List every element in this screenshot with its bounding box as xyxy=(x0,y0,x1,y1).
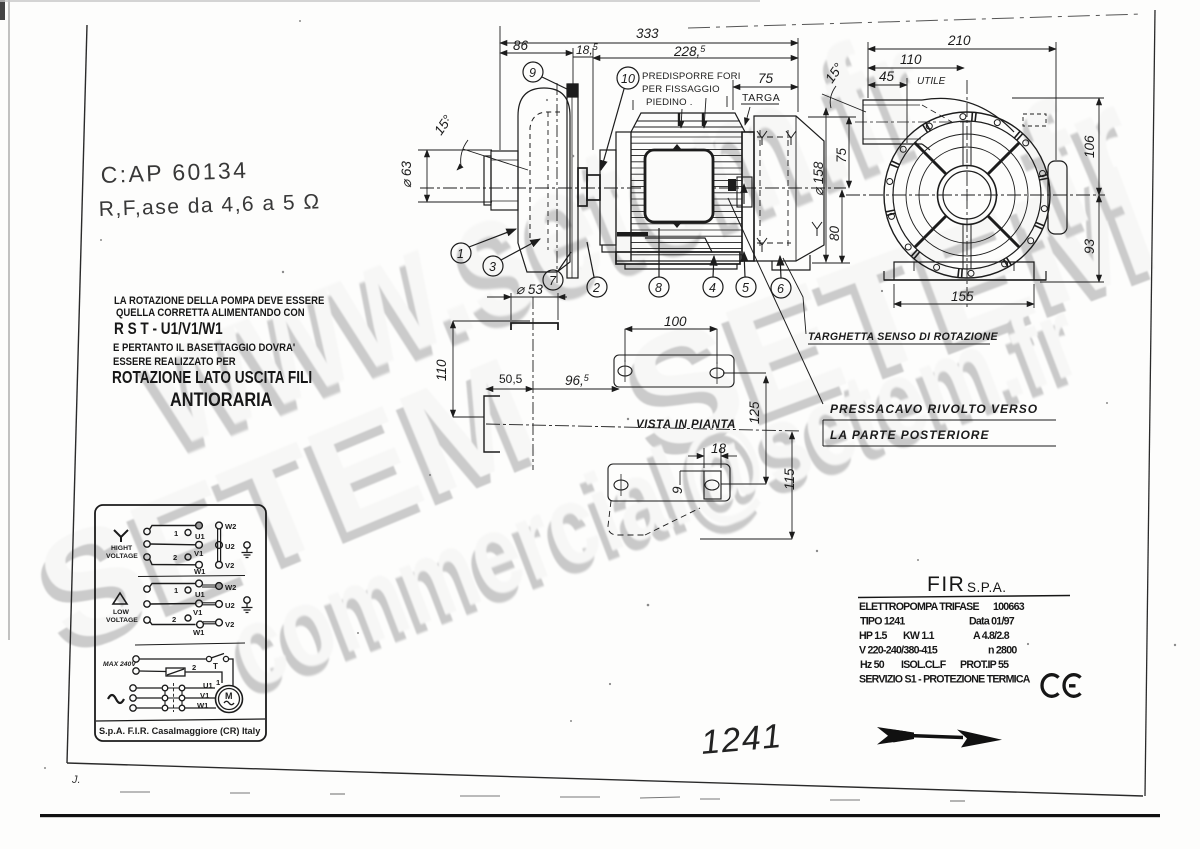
svg-text:T: T xyxy=(213,662,218,671)
svg-text:W2: W2 xyxy=(225,522,236,531)
svg-text:E PERTANTO IL BASETTAGGIO DOVR: E PERTANTO IL BASETTAGGIO DOVRA' xyxy=(113,342,295,354)
svg-text:18: 18 xyxy=(711,441,727,456)
svg-text:50,5: 50,5 xyxy=(499,372,523,386)
svg-text:⌀ 53: ⌀ 53 xyxy=(516,282,543,297)
svg-text:PER FISSAGGIO: PER FISSAGGIO xyxy=(642,84,720,95)
svg-text:U2: U2 xyxy=(225,601,235,610)
svg-text:U1: U1 xyxy=(203,681,213,690)
svg-text:J.: J. xyxy=(71,774,81,786)
svg-text:TARGHETTA SENSO DI ROTAZIONE: TARGHETTA SENSO DI ROTAZIONE xyxy=(808,331,998,343)
svg-text:U1: U1 xyxy=(195,532,205,541)
svg-text:n 2800: n 2800 xyxy=(988,645,1017,657)
svg-text:V1: V1 xyxy=(194,549,204,558)
svg-text:2: 2 xyxy=(192,663,196,672)
svg-text:TIPO 1241: TIPO 1241 xyxy=(860,616,905,628)
svg-text:SERVIZIO S1 - PROTEZIONE TERMI: SERVIZIO S1 - PROTEZIONE TERMICA xyxy=(859,674,1031,686)
svg-text:R,F,ase da 4,6 a 5 Ω: R,F,ase da 4,6 a 5 Ω xyxy=(98,190,321,221)
svg-text:V2: V2 xyxy=(225,620,234,629)
svg-text:2: 2 xyxy=(173,553,177,562)
svg-text:HIGHT: HIGHT xyxy=(111,545,133,552)
svg-text:100663: 100663 xyxy=(993,601,1025,613)
svg-text:U2: U2 xyxy=(225,542,235,551)
svg-text:125: 125 xyxy=(747,401,762,424)
svg-text:LA ROTAZIONE DELLA POMPA DEVE: LA ROTAZIONE DELLA POMPA DEVE ESSERE xyxy=(114,295,324,307)
svg-text:UTILE: UTILE xyxy=(917,76,946,87)
svg-text:V 220-240/380-415: V 220-240/380-415 xyxy=(859,645,938,657)
svg-text:ESSERE REALIZZATO PER: ESSERE REALIZZATO PER xyxy=(113,356,236,368)
svg-text:75: 75 xyxy=(834,147,849,163)
svg-text:MAX 240V: MAX 240V xyxy=(103,661,137,668)
svg-text:1: 1 xyxy=(457,247,464,261)
svg-text:W1: W1 xyxy=(194,567,206,576)
svg-text:333: 333 xyxy=(636,26,659,41)
svg-text:PRESSACAVO RIVOLTO VERSO: PRESSACAVO RIVOLTO VERSO xyxy=(830,402,1038,416)
svg-text:110: 110 xyxy=(900,52,922,67)
svg-text:96,5: 96,5 xyxy=(565,373,590,388)
svg-text:V1: V1 xyxy=(193,608,203,617)
svg-text:VISTA IN PIANTA: VISTA IN PIANTA xyxy=(636,419,736,431)
svg-text:8: 8 xyxy=(655,281,662,295)
svg-text:228,5: 228,5 xyxy=(673,44,706,59)
svg-text:PIEDINO .: PIEDINO . xyxy=(646,97,693,108)
svg-text:TARGA: TARGA xyxy=(742,92,780,104)
svg-text:QUELLA CORRETTA ALIMENTANDO CO: QUELLA CORRETTA ALIMENTANDO CON xyxy=(116,307,305,319)
svg-text:86: 86 xyxy=(513,38,529,53)
svg-text:6: 6 xyxy=(777,282,784,296)
svg-text:210: 210 xyxy=(947,33,971,48)
svg-text:115: 115 xyxy=(782,468,797,490)
svg-text:V2: V2 xyxy=(225,561,234,570)
svg-text:93: 93 xyxy=(1082,238,1097,254)
svg-text:1: 1 xyxy=(216,678,221,687)
svg-text:10: 10 xyxy=(621,72,635,86)
svg-text:18,5: 18,5 xyxy=(576,42,599,57)
svg-text:HP 1.5: HP 1.5 xyxy=(859,630,888,642)
svg-text:S.p.A. F.I.R. Casalmaggiore (C: S.p.A. F.I.R. Casalmaggiore (CR) Italy xyxy=(99,726,261,736)
svg-text:7: 7 xyxy=(549,274,557,288)
svg-text:5: 5 xyxy=(742,281,749,295)
svg-text:W1: W1 xyxy=(193,628,205,637)
svg-text:ROTAZIONE LATO USCITA FILI: ROTAZIONE LATO USCITA FILI xyxy=(112,369,312,388)
svg-text:LOW: LOW xyxy=(113,609,129,616)
svg-text:106: 106 xyxy=(1082,135,1097,158)
svg-text:2: 2 xyxy=(172,615,176,624)
svg-text:45: 45 xyxy=(879,69,895,84)
svg-text:V1: V1 xyxy=(200,691,210,700)
svg-text:VOLTAGE: VOLTAGE xyxy=(106,617,138,624)
svg-text:PREDISPORRE FORI: PREDISPORRE FORI xyxy=(642,71,741,82)
svg-text:1241: 1241 xyxy=(699,717,784,762)
svg-text:W1: W1 xyxy=(197,701,209,710)
svg-text:100: 100 xyxy=(664,314,687,329)
svg-text:4: 4 xyxy=(709,281,716,295)
svg-text:⌀ 63: ⌀ 63 xyxy=(399,161,414,188)
svg-text:S.P.A.: S.P.A. xyxy=(967,580,1007,595)
svg-text:LA PARTE POSTERIORE: LA PARTE POSTERIORE xyxy=(830,428,989,442)
svg-text:ELETTROPOMPA TRIFASE: ELETTROPOMPA TRIFASE xyxy=(859,601,979,613)
svg-text:9: 9 xyxy=(529,66,536,80)
svg-text:110: 110 xyxy=(434,359,449,381)
svg-text:M: M xyxy=(225,691,233,701)
svg-text:Hz 50: Hz 50 xyxy=(860,659,885,671)
svg-text:155: 155 xyxy=(951,289,974,304)
svg-text:A 4.8/2.8: A 4.8/2.8 xyxy=(973,630,1010,642)
svg-text:2: 2 xyxy=(592,281,600,295)
svg-text:ANTIORARIA: ANTIORARIA xyxy=(170,389,273,410)
svg-text:3: 3 xyxy=(489,260,496,274)
svg-text:ISOL.CL.F: ISOL.CL.F xyxy=(901,659,947,671)
svg-text:W2: W2 xyxy=(225,583,236,592)
svg-text:15°: 15° xyxy=(431,112,455,138)
svg-text:Data 01/97: Data 01/97 xyxy=(969,616,1015,628)
svg-text:80: 80 xyxy=(827,225,842,241)
svg-text:C:AP 60134: C:AP 60134 xyxy=(100,157,248,188)
svg-text:FIR: FIR xyxy=(927,573,965,596)
svg-text:VOLTAGE: VOLTAGE xyxy=(106,553,138,560)
svg-text:9: 9 xyxy=(670,486,685,494)
svg-text:PROT.IP 55: PROT.IP 55 xyxy=(960,659,1009,671)
svg-text:R S T - U1/V1/W1: R S T - U1/V1/W1 xyxy=(114,320,223,339)
svg-text:KW 1.1: KW 1.1 xyxy=(903,630,935,642)
svg-text:75: 75 xyxy=(758,71,774,86)
svg-text:⌀ 158: ⌀ 158 xyxy=(811,161,826,196)
svg-text:U1: U1 xyxy=(195,590,205,599)
